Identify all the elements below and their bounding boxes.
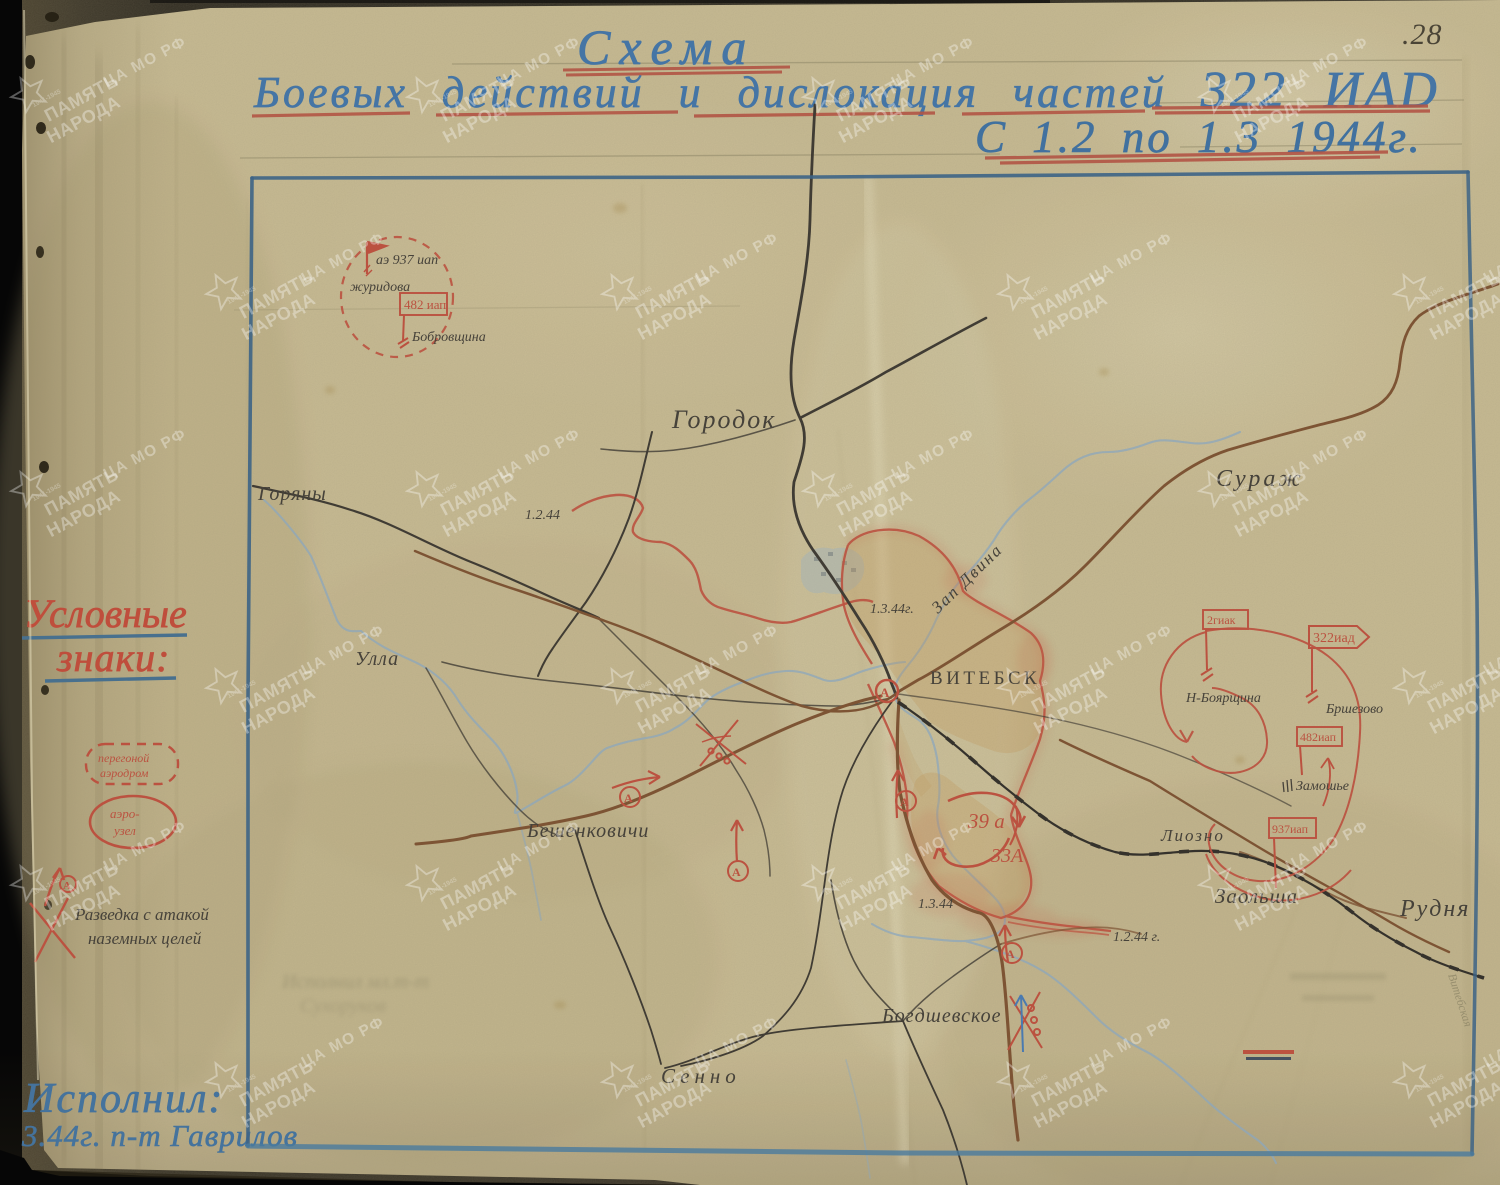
svg-text:аэродром: аэродром (100, 766, 149, 780)
svg-text:А: А (732, 865, 741, 879)
svg-text:1.2.44 г.: 1.2.44 г. (1113, 930, 1160, 945)
svg-text:Условные: Условные (24, 591, 187, 636)
svg-text:937иап: 937иап (1272, 822, 1309, 836)
svg-text:знаки:: знаки: (56, 635, 170, 680)
svg-text:Рудня: Рудня (1399, 896, 1470, 922)
svg-text:Замошье: Замошье (1296, 779, 1349, 794)
svg-text:1.3.44г.: 1.3.44г. (870, 602, 914, 617)
svg-text:1.2.44: 1.2.44 (525, 508, 560, 523)
svg-text:.28: .28 (1402, 18, 1443, 51)
svg-text:2гиак: 2гиак (1207, 613, 1236, 627)
svg-text:Н-Боярщина: Н-Боярщина (1185, 691, 1261, 706)
svg-text:А: А (624, 791, 633, 805)
svg-text:А: А (1006, 947, 1015, 961)
svg-text:322иад: 322иад (1313, 631, 1355, 646)
svg-text:аэро-: аэро- (110, 806, 140, 821)
svg-text:482 иап: 482 иап (404, 297, 446, 312)
svg-text:482иап: 482иап (1300, 730, 1337, 744)
svg-text:Сухоруков: Сухоруков (300, 995, 387, 1017)
svg-text:Лиозно: Лиозно (1160, 826, 1225, 845)
svg-text:Бобровщина: Бобровщина (411, 330, 486, 345)
svg-text:33А: 33А (990, 845, 1024, 867)
svg-text:аэ 937 иап: аэ 937 иап (376, 253, 438, 268)
svg-text:Горяны: Горяны (257, 483, 327, 505)
svg-text:перегоной: перегоной (98, 751, 149, 765)
svg-text:1.3.44: 1.3.44 (918, 897, 953, 912)
svg-text:Городок: Городок (671, 405, 776, 434)
svg-text:узел: узел (112, 823, 136, 838)
svg-text:А: А (880, 685, 890, 700)
svg-text:наземных целей: наземных целей (88, 929, 202, 948)
svg-text:Исполнил мл.т-т: Исполнил мл.т-т (281, 971, 429, 993)
svg-text:Бршезово: Бршезово (1325, 702, 1383, 717)
svg-text:Богдшевское: Богдшевское (881, 1005, 1001, 1027)
svg-text:Улла: Улла (355, 648, 399, 670)
svg-text:А: А (900, 795, 909, 809)
svg-text:ВИТЕБСК: ВИТЕБСК (930, 668, 1040, 689)
svg-text:Исполнил:: Исполнил: (23, 1076, 224, 1122)
